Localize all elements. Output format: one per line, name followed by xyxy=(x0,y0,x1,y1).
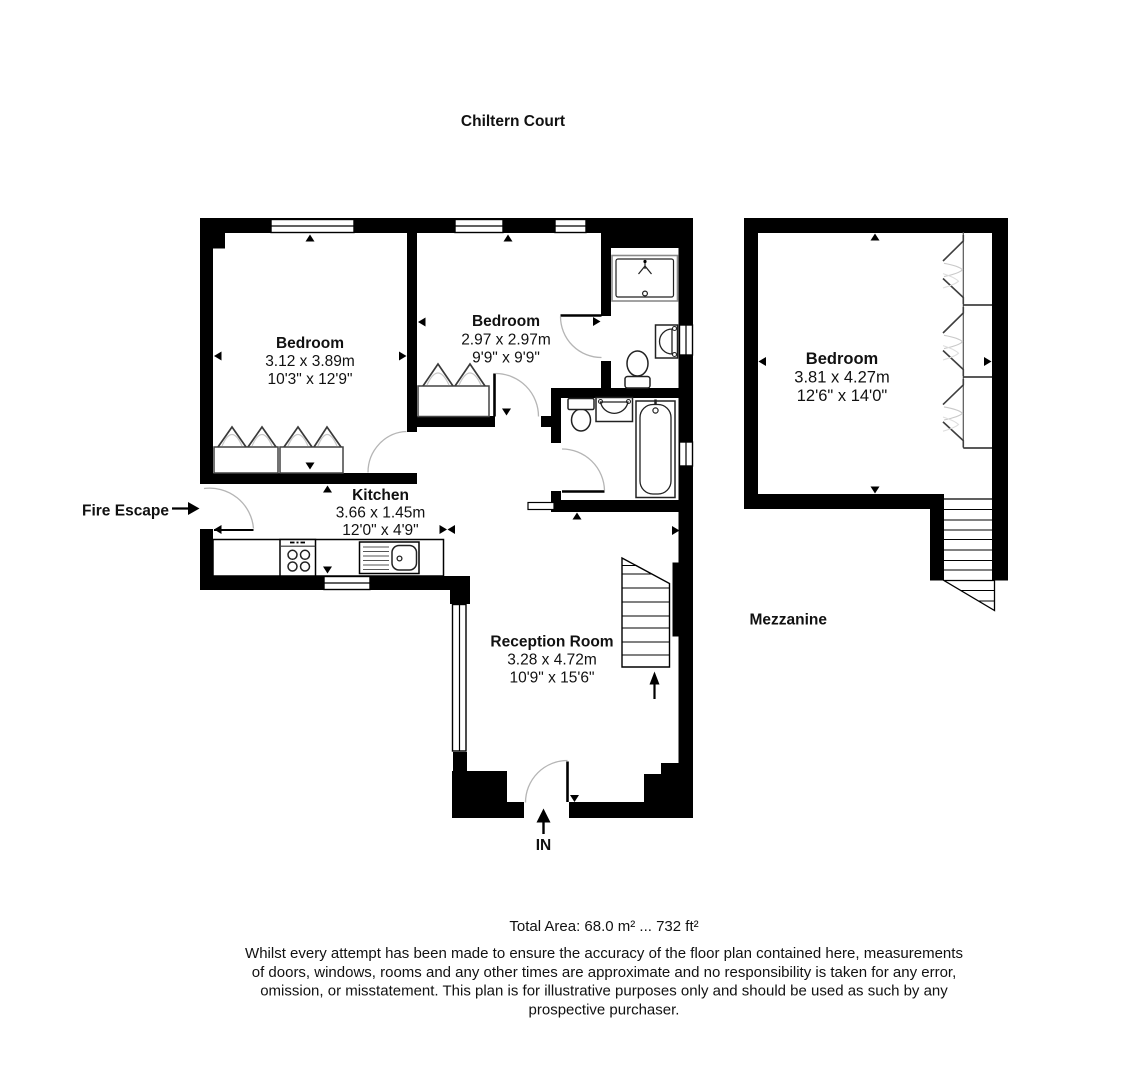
svg-text:9'9" x 9'9": 9'9" x 9'9" xyxy=(472,350,540,367)
svg-text:10'3" x 12'9": 10'3" x 12'9" xyxy=(267,371,352,388)
svg-text:omission, or misstatement. Thi: omission, or misstatement. This plan is … xyxy=(260,983,948,1000)
svg-text:Total Area: 68.0 m² ... 732 ft: Total Area: 68.0 m² ... 732 ft² xyxy=(509,918,698,935)
svg-text:3.12 x 3.89m: 3.12 x 3.89m xyxy=(265,353,355,370)
svg-text:3.66 x 1.45m: 3.66 x 1.45m xyxy=(336,505,426,522)
svg-text:Whilst every attempt has been: Whilst every attempt has been made to en… xyxy=(245,945,963,962)
svg-text:Chiltern Court: Chiltern Court xyxy=(461,113,565,130)
svg-text:12'0" x 4'9": 12'0" x 4'9" xyxy=(342,522,418,539)
svg-text:Reception Room: Reception Room xyxy=(490,634,613,651)
svg-text:12'6" x 14'0": 12'6" x 14'0" xyxy=(797,387,888,405)
svg-text:Mezzanine: Mezzanine xyxy=(750,612,828,629)
svg-text:prospective purchaser.: prospective purchaser. xyxy=(529,1001,680,1018)
svg-text:3.81 x 4.27m: 3.81 x 4.27m xyxy=(794,369,889,387)
svg-text:10'9" x 15'6": 10'9" x 15'6" xyxy=(509,670,594,687)
svg-text:Bedroom: Bedroom xyxy=(276,335,344,352)
svg-text:2.97 x 2.97m: 2.97 x 2.97m xyxy=(461,332,551,349)
svg-text:Kitchen: Kitchen xyxy=(352,487,409,504)
svg-text:Bedroom: Bedroom xyxy=(806,350,878,368)
svg-text:Fire Escape: Fire Escape xyxy=(82,503,169,520)
svg-text:of doors, windows, rooms and a: of doors, windows, rooms and any other t… xyxy=(252,964,957,981)
svg-text:3.28 x 4.72m: 3.28 x 4.72m xyxy=(507,652,597,669)
svg-text:Bedroom: Bedroom xyxy=(472,313,540,330)
svg-text:IN: IN xyxy=(536,837,552,854)
